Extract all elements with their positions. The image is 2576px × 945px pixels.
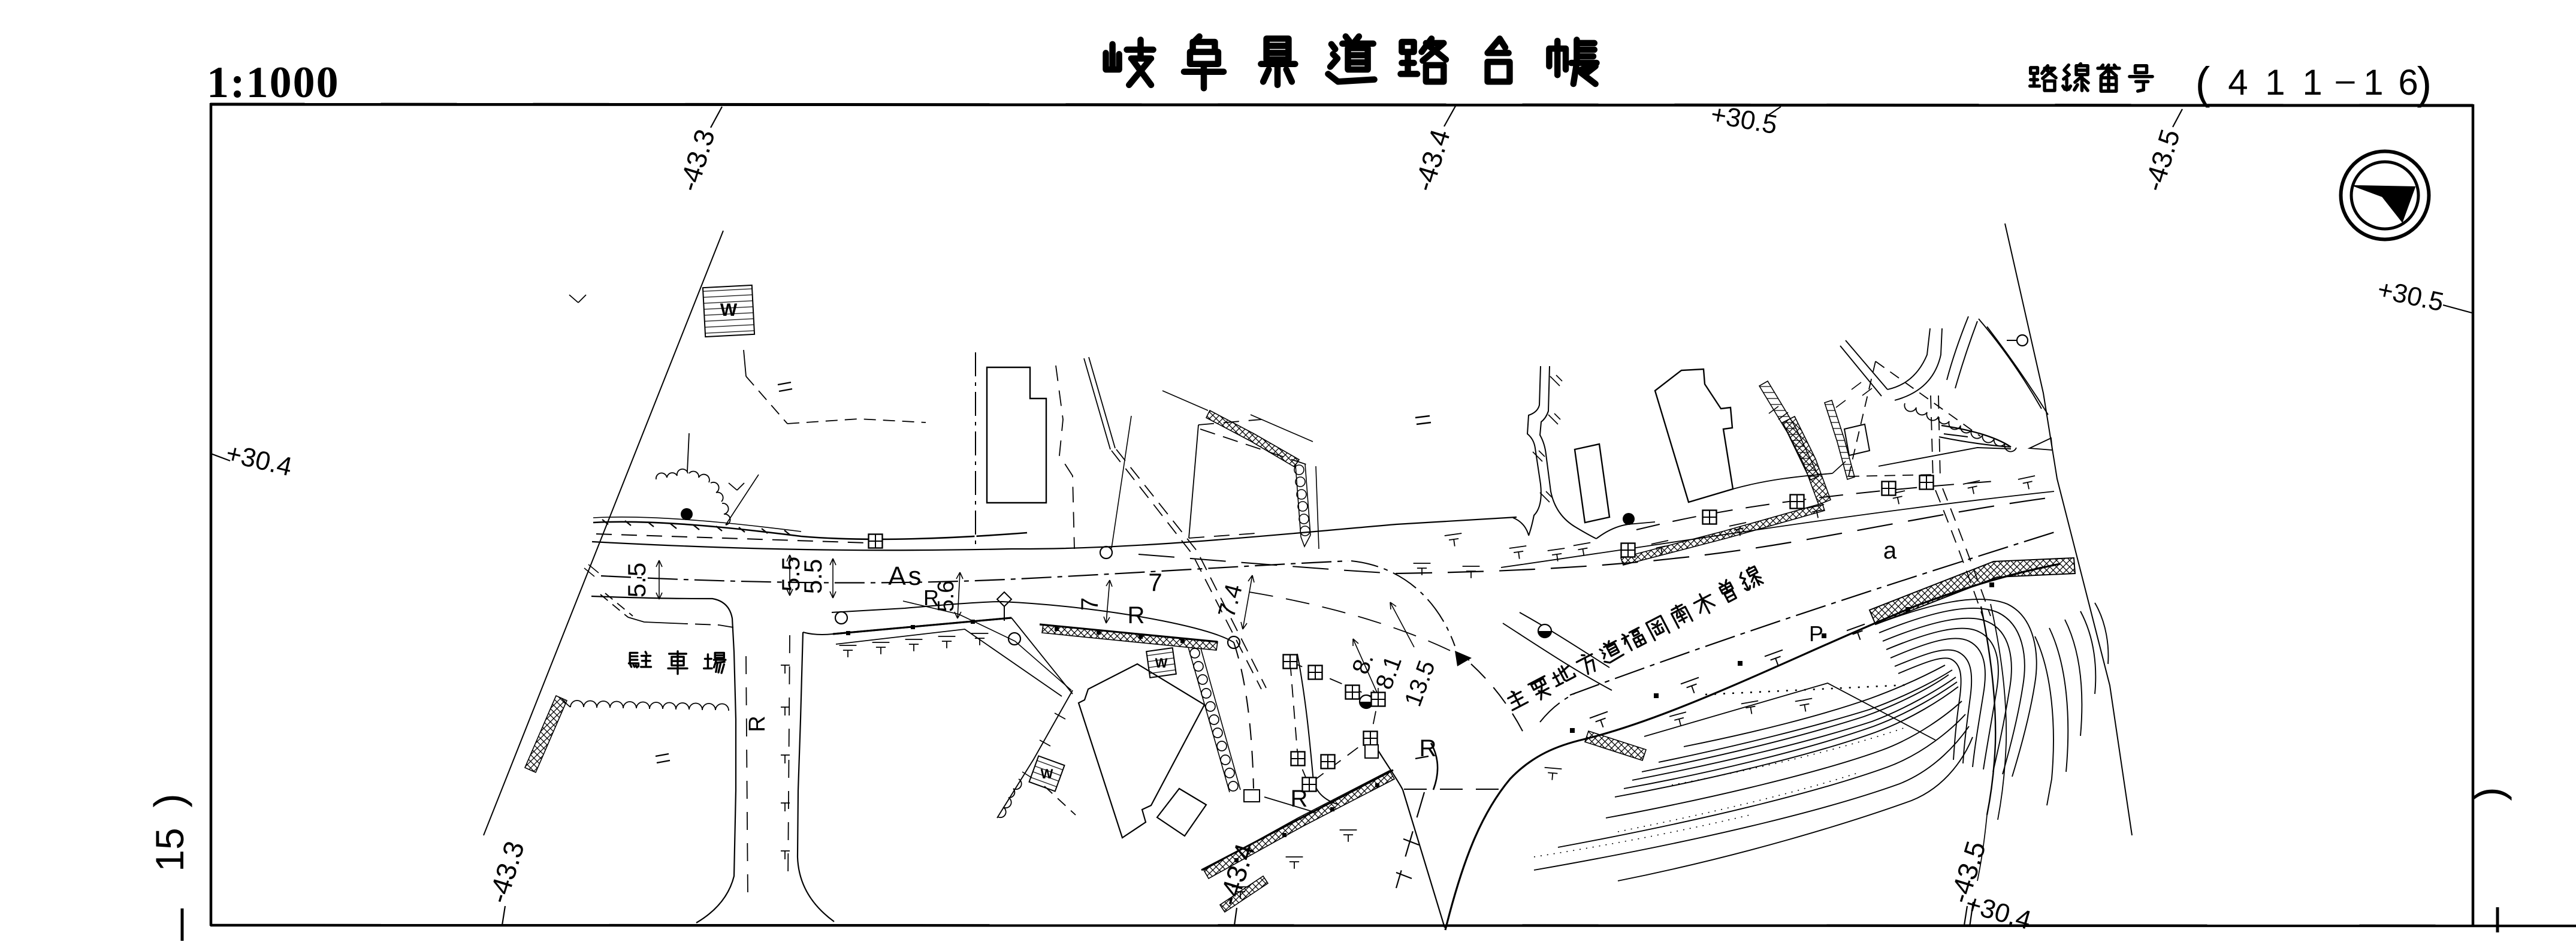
svg-text:W: W — [1041, 766, 1053, 781]
svg-text:4 1 1: 4 1 1 — [2228, 62, 2326, 102]
svg-text:5.5: 5.5 — [623, 563, 651, 597]
svg-text:15: 15 — [147, 828, 192, 871]
svg-text:R: R — [1420, 735, 1437, 762]
svg-text:): ) — [146, 793, 192, 807]
svg-text:7: 7 — [1077, 597, 1103, 611]
svg-text:1:1000: 1:1000 — [207, 58, 340, 107]
svg-text:W: W — [720, 300, 738, 320]
svg-text:W: W — [1155, 656, 1168, 671]
svg-text:a: a — [1883, 538, 1897, 564]
svg-text:): ) — [2417, 58, 2432, 108]
svg-text:1 6: 1 6 — [2363, 62, 2420, 102]
svg-text:7: 7 — [1148, 568, 1162, 596]
svg-text:R: R — [745, 715, 770, 732]
svg-text:–: – — [2336, 61, 2355, 98]
svg-text:5.5: 5.5 — [799, 559, 827, 594]
svg-text:(: ( — [2196, 58, 2210, 108]
svg-text:R: R — [923, 585, 939, 610]
svg-text:As: As — [888, 561, 923, 591]
svg-text:): ) — [2465, 787, 2512, 801]
svg-text:R: R — [1128, 602, 1145, 629]
svg-text:P: P — [1809, 621, 1823, 646]
